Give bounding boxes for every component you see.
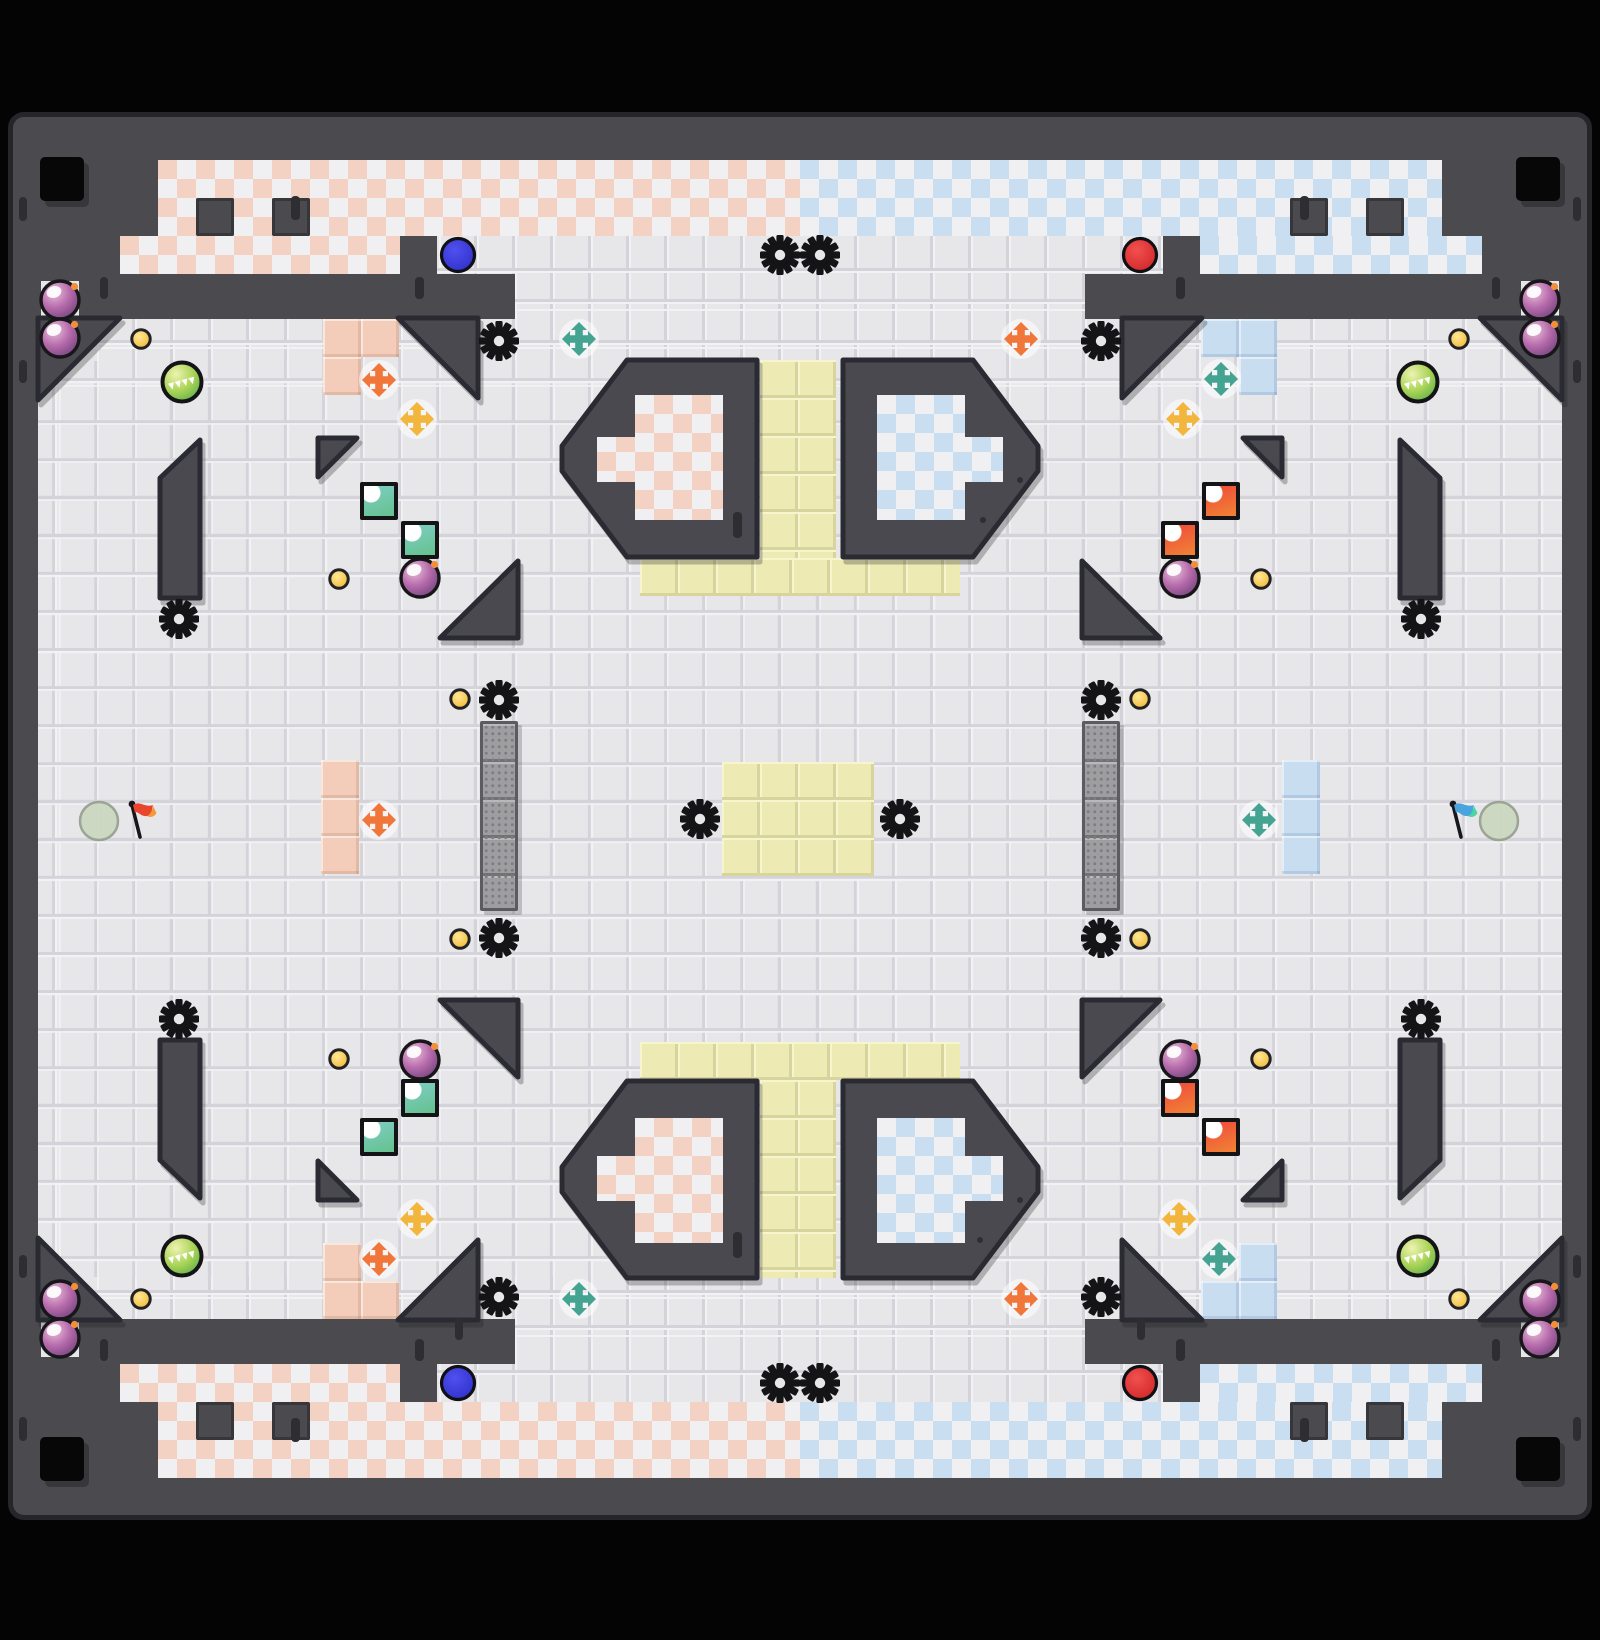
spike-gear-icon — [479, 321, 519, 361]
spike-gear-icon — [159, 999, 199, 1039]
powerup-green-icon[interactable] — [1399, 1237, 1438, 1276]
spike-gear-icon — [880, 799, 920, 839]
gate-button[interactable] — [1450, 330, 1468, 348]
gate-button[interactable] — [132, 330, 150, 348]
boost-pad-yellow[interactable] — [397, 1199, 437, 1239]
gate-button[interactable] — [330, 570, 348, 588]
toggle-gate-tile-red[interactable] — [1202, 482, 1240, 520]
toggle-gate-tile-red[interactable] — [1161, 521, 1199, 559]
gate-button[interactable] — [1131, 930, 1149, 948]
gate-button[interactable] — [330, 1050, 348, 1068]
bomb-icon[interactable] — [41, 319, 79, 357]
boost-pad-teal[interactable] — [559, 1279, 599, 1319]
portal-blue[interactable] — [442, 1367, 475, 1400]
portal-blue[interactable] — [442, 239, 475, 272]
ball-spawn-circle — [80, 802, 118, 840]
spike-gear-icon — [1401, 999, 1441, 1039]
boost-pad-teal[interactable] — [559, 319, 599, 359]
spike-gear-icon — [760, 235, 800, 275]
flag-blue[interactable] — [1450, 801, 1478, 837]
boost-pad-yellow[interactable] — [397, 399, 437, 439]
gate-button[interactable] — [132, 1290, 150, 1308]
spike-gear-icon — [760, 1363, 800, 1403]
boost-pad-orange[interactable] — [359, 360, 399, 400]
boost-pad-orange[interactable] — [359, 1239, 399, 1279]
bomb-icon[interactable] — [1521, 1281, 1559, 1319]
spike-gear-icon — [1081, 680, 1121, 720]
spike-gear-icon — [800, 1363, 840, 1403]
boost-pad-orange[interactable] — [359, 800, 399, 840]
boost-pad-orange[interactable] — [1001, 319, 1041, 359]
bomb-icon[interactable] — [1161, 1041, 1199, 1079]
gate-button[interactable] — [451, 930, 469, 948]
game-arena-map — [0, 0, 1600, 1640]
boost-pad-teal[interactable] — [1239, 800, 1279, 840]
bomb-icon[interactable] — [1161, 559, 1199, 597]
gate-button[interactable] — [451, 690, 469, 708]
toggle-gate-tile-teal[interactable] — [360, 1118, 398, 1156]
gate-button[interactable] — [1450, 1290, 1468, 1308]
spike-gear-icon — [479, 918, 519, 958]
bomb-icon[interactable] — [41, 1281, 79, 1319]
spike-gear-icon — [1081, 321, 1121, 361]
spike-gear-icon — [1081, 1277, 1121, 1317]
spike-gear-icon — [680, 799, 720, 839]
toggle-gate-tile-teal[interactable] — [401, 1079, 439, 1117]
flag-red[interactable] — [129, 801, 157, 837]
bomb-icon[interactable] — [1521, 319, 1559, 357]
powerup-green-icon[interactable] — [1399, 363, 1438, 402]
portal-red[interactable] — [1124, 1367, 1157, 1400]
boost-pad-yellow[interactable] — [1159, 1199, 1199, 1239]
spike-gear-icon — [479, 680, 519, 720]
boost-pad-teal[interactable] — [1199, 1239, 1239, 1279]
spike-gear-icon — [800, 235, 840, 275]
portal-red[interactable] — [1124, 239, 1157, 272]
boost-pad-teal[interactable] — [1201, 359, 1241, 399]
boost-pad-orange[interactable] — [1001, 1279, 1041, 1319]
boost-pad-yellow[interactable] — [1163, 399, 1203, 439]
toggle-gate-tile-teal[interactable] — [360, 482, 398, 520]
gate-button[interactable] — [1252, 1050, 1270, 1068]
powerup-green-icon[interactable] — [163, 363, 202, 402]
toggle-gate-tile-red[interactable] — [1161, 1079, 1199, 1117]
spike-gear-icon — [479, 1277, 519, 1317]
bomb-icon[interactable] — [41, 281, 79, 319]
game-objects-layer — [0, 0, 1600, 1640]
powerup-green-icon[interactable] — [163, 1237, 202, 1276]
bomb-icon[interactable] — [401, 1041, 439, 1079]
bomb-icon[interactable] — [41, 1319, 79, 1357]
bomb-icon[interactable] — [401, 559, 439, 597]
ball-spawn-circle — [1480, 802, 1518, 840]
bomb-icon[interactable] — [1521, 1319, 1559, 1357]
bomb-icon[interactable] — [1521, 281, 1559, 319]
spike-gear-icon — [159, 599, 199, 639]
spike-gear-icon — [1401, 599, 1441, 639]
gate-button[interactable] — [1252, 570, 1270, 588]
spike-gear-icon — [1081, 918, 1121, 958]
toggle-gate-tile-red[interactable] — [1202, 1118, 1240, 1156]
toggle-gate-tile-teal[interactable] — [401, 521, 439, 559]
gate-button[interactable] — [1131, 690, 1149, 708]
